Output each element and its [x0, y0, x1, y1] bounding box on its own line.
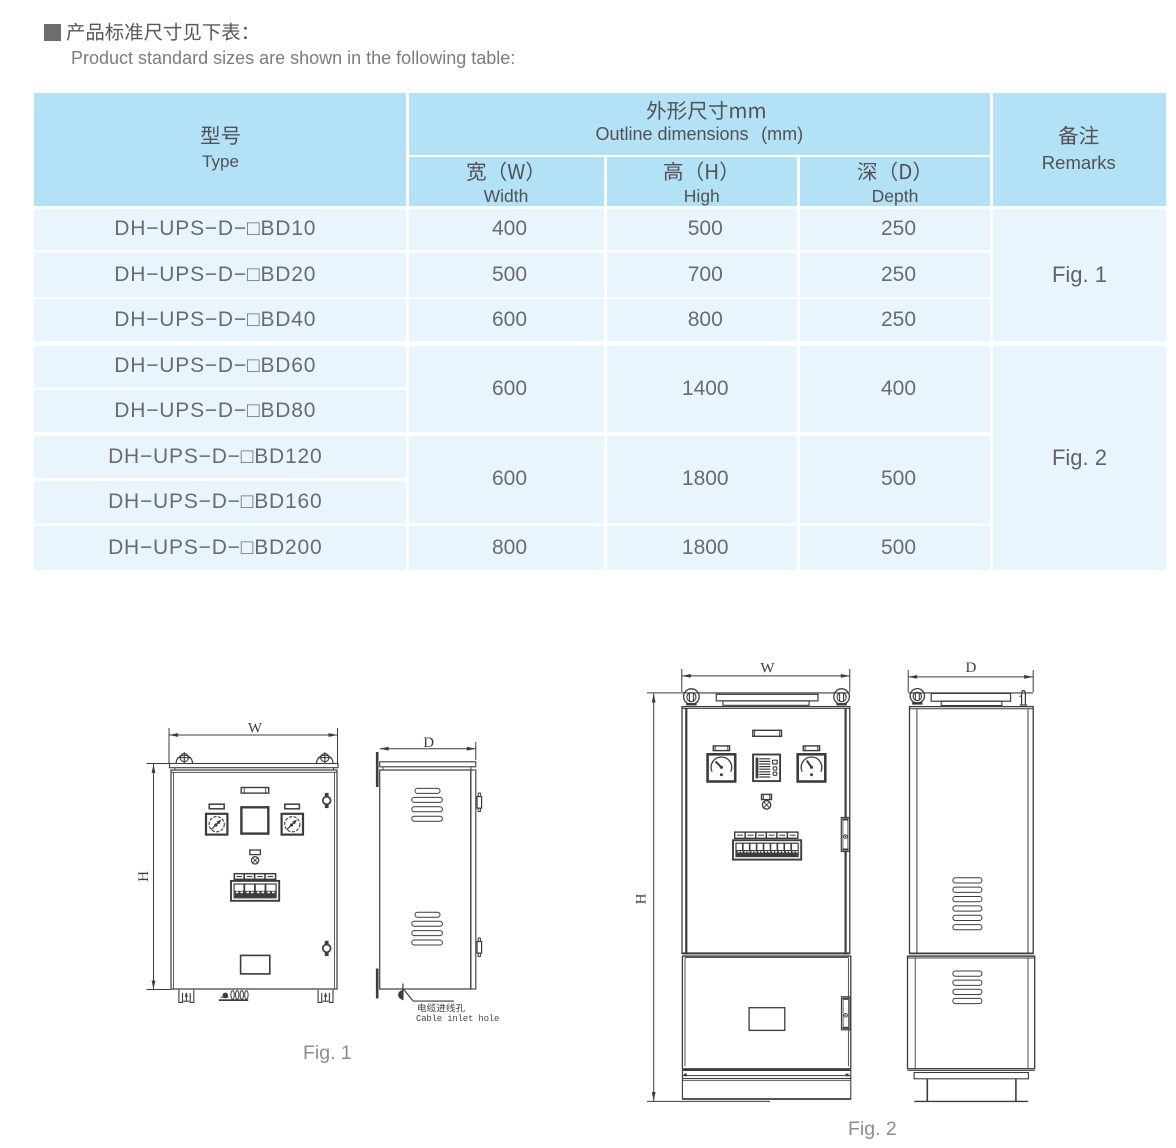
svg-text:D: D [423, 735, 434, 751]
svg-text:W: W [760, 660, 775, 676]
svg-text:H: H [634, 893, 650, 904]
svg-text:D: D [965, 660, 976, 676]
svg-text:W: W [248, 721, 263, 737]
svg-text:H: H [136, 871, 152, 882]
